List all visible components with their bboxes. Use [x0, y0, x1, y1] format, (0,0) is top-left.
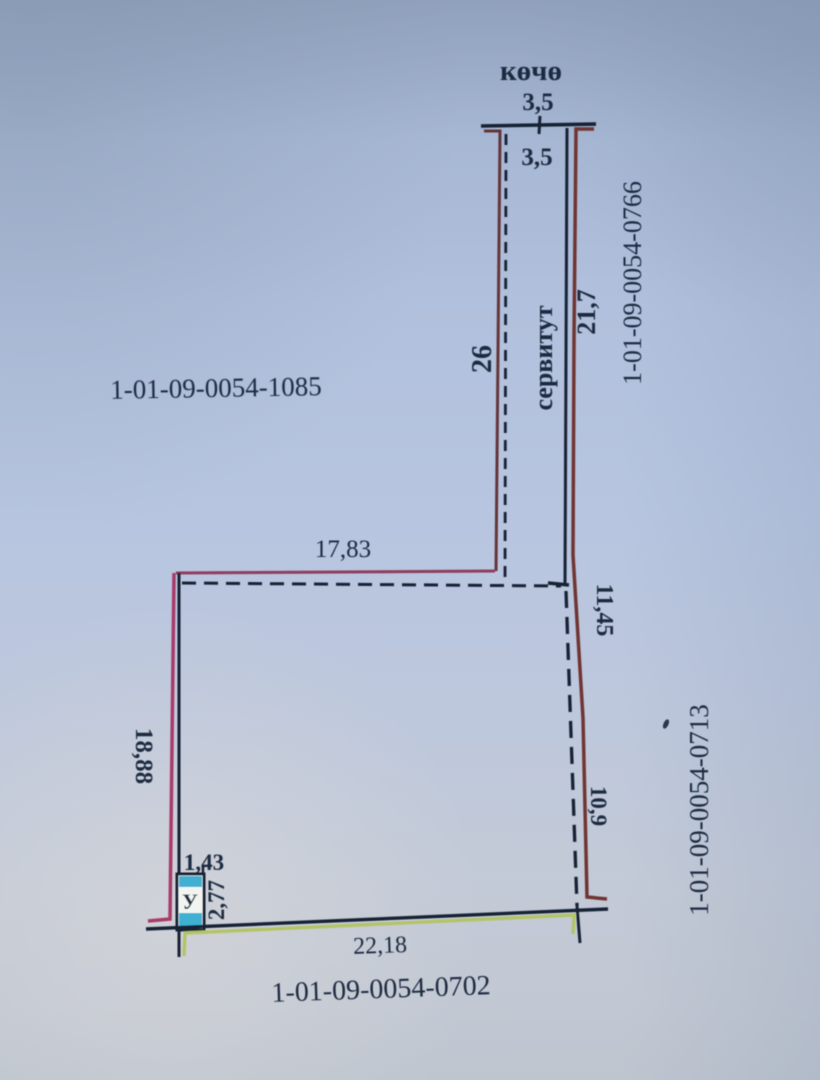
svg-text:10,9: 10,9 — [586, 786, 611, 826]
svg-text:17,83: 17,83 — [315, 536, 371, 563]
svg-text:3,5: 3,5 — [521, 144, 552, 171]
svg-text:2,77: 2,77 — [204, 880, 229, 920]
svg-text:көчө: көчө — [500, 55, 562, 87]
svg-text:1-01-09-0054-1085: 1-01-09-0054-1085 — [110, 371, 322, 405]
svg-text:сервитут: сервитут — [529, 305, 558, 410]
svg-text:18,88: 18,88 — [130, 728, 157, 784]
svg-text:1-01-09-0054-0766: 1-01-09-0054-0766 — [618, 181, 647, 385]
svg-text:21,7: 21,7 — [572, 289, 601, 335]
svg-text:У: У — [182, 889, 198, 914]
svg-text:26: 26 — [467, 345, 498, 373]
svg-text:11,45: 11,45 — [591, 584, 617, 637]
svg-text:22,18: 22,18 — [353, 932, 408, 960]
svg-text:1-01-09-0054-0713: 1-01-09-0054-0713 — [684, 704, 714, 915]
svg-text:3,5: 3,5 — [522, 89, 553, 116]
